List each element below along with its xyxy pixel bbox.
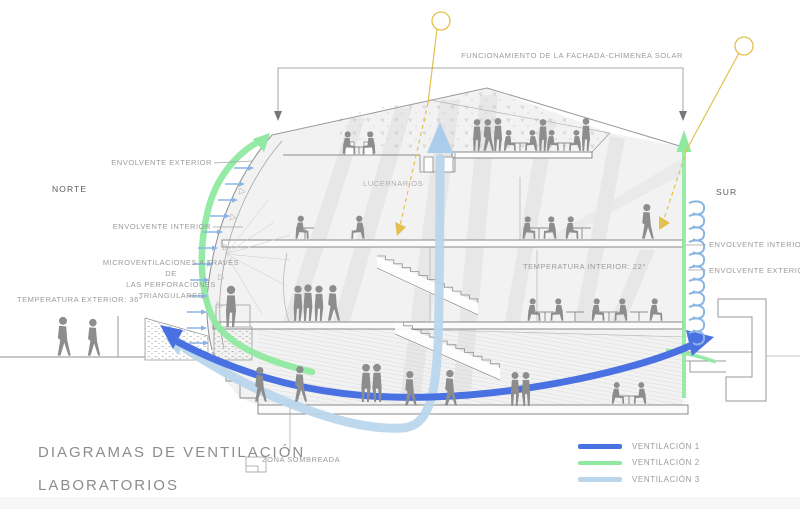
legend: VENTILACIÓN 1 VENTILACIÓN 2 VENTILACIÓN … — [578, 438, 700, 488]
legend-row-ventilacion-2: VENTILACIÓN 2 — [578, 455, 700, 472]
building-section-drawing — [0, 0, 800, 509]
legend-swatch-ventilacion-1 — [578, 444, 622, 449]
south-facade-gust-arrows — [689, 201, 704, 344]
page-title: DIAGRAMAS DE VENTILACIÓN — [38, 444, 305, 461]
flow2-arrowhead-right-top — [677, 130, 692, 152]
page-bottom-strip — [0, 497, 800, 509]
legend-row-ventilacion-3: VENTILACIÓN 3 — [578, 471, 700, 488]
legend-label-ventilacion-2: VENTILACIÓN 2 — [632, 458, 700, 467]
page-subtitle: LABORATORIOS — [38, 477, 179, 494]
ventilation-diagram-page: FUNCIONAMIENTO DE LA FACHADA-CHIMENEA SO… — [0, 0, 800, 509]
legend-swatch-ventilacion-2 — [578, 461, 622, 466]
label-envolvente-exterior-left: ENVOLVENTE EXTERIOR — [92, 158, 212, 167]
legend-label-ventilacion-3: VENTILACIÓN 3 — [632, 475, 700, 484]
legend-label-ventilacion-1: VENTILACIÓN 1 — [632, 442, 700, 451]
label-lucernarios: LUCERNARIOS — [363, 179, 423, 188]
compass-south-label: SUR — [716, 187, 737, 197]
compass-north-label: NORTE — [52, 184, 87, 194]
label-temperatura-interior: TEMPERATURA INTERIOR: 22° — [523, 262, 646, 271]
legend-row-ventilacion-1: VENTILACIÓN 1 — [578, 438, 700, 455]
label-envolvente-exterior-right: ENVOLVENTE EXTERIOR — [709, 266, 800, 275]
label-microventilaciones-line1: MICROVENTILACIONES A TRAVÉS DE — [100, 257, 242, 279]
label-solar-chimney: FUNCIONAMIENTO DE LA FACHADA-CHIMENEA SO… — [443, 51, 683, 60]
label-temperatura-exterior: TEMPERATURA EXTERIOR: 36° — [17, 295, 142, 304]
label-envolvente-interior-right: ENVOLVENTE INTERIOR — [709, 240, 800, 249]
legend-swatch-ventilacion-3 — [578, 477, 622, 482]
label-envolvente-interior-left: ENVOLVENTE INTERIOR — [91, 222, 211, 231]
